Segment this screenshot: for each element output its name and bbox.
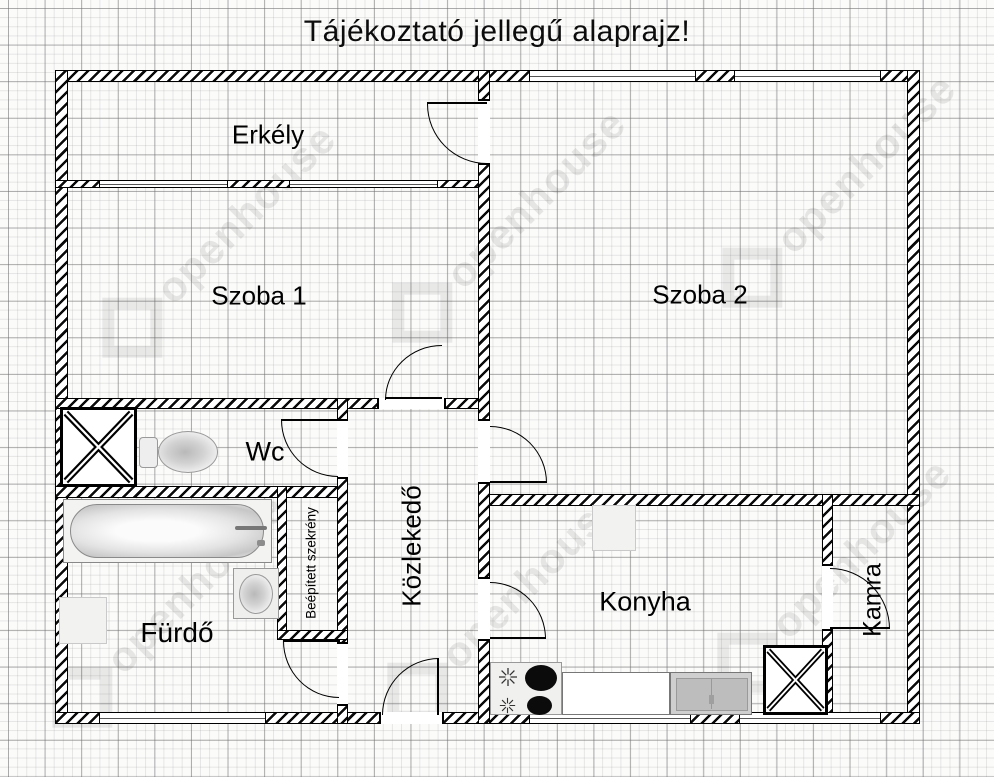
door-leaf <box>281 419 339 421</box>
door-swing-arc <box>490 582 546 639</box>
wall <box>695 70 735 82</box>
door-leaf <box>283 640 340 642</box>
stove-burner-icon <box>527 696 552 715</box>
stove-burner-star-icon <box>498 667 518 687</box>
wall <box>337 398 348 420</box>
door-swing-arc <box>382 658 439 715</box>
window <box>100 180 227 188</box>
door-swing-arc <box>281 420 338 477</box>
wall <box>337 478 348 643</box>
kitchen-sink-tap-icon <box>709 695 714 704</box>
wall <box>265 712 380 724</box>
wall <box>55 180 100 188</box>
shaft-cross-icon <box>766 648 825 712</box>
wall <box>478 164 490 420</box>
openhouse-logo-icon <box>393 282 453 342</box>
window <box>100 712 265 724</box>
room-label-szoba1: Szoba 1 <box>211 281 306 312</box>
door-leaf <box>427 102 487 104</box>
room-label-furdo: Fürdő <box>140 617 213 649</box>
fridge-icon <box>592 505 636 551</box>
washing-machine-icon <box>59 597 107 644</box>
room-label-wc: Wc <box>246 437 285 468</box>
openhouse-logo-icon <box>103 297 163 357</box>
wall <box>907 70 920 724</box>
kitchen-sink-divider-icon <box>711 678 712 709</box>
bathtub-faucet-icon <box>235 526 267 530</box>
toilet-icon <box>158 431 218 473</box>
door-swing-arc <box>283 641 339 698</box>
door-leaf <box>385 397 442 399</box>
room-label-szekreny: Beépített szekrény <box>304 507 319 619</box>
stove-burner-star-icon <box>499 697 516 714</box>
room-label-konyha: Konyha <box>599 587 691 618</box>
stove-burner-icon <box>525 665 557 691</box>
bathroom-sink-basin-icon <box>239 574 273 614</box>
wall <box>478 494 920 506</box>
wall <box>227 180 290 188</box>
shaft-icon <box>763 645 828 715</box>
wall <box>478 640 490 724</box>
door-opening <box>478 578 490 640</box>
door-opening <box>337 420 348 478</box>
watermark: openhouse <box>75 95 365 385</box>
wall <box>478 483 490 578</box>
kitchen-sink-icon <box>670 672 752 715</box>
wall <box>337 705 348 724</box>
kitchen-counter-icon <box>562 672 670 715</box>
wall <box>55 486 348 498</box>
bathtub-basin-icon <box>70 504 264 558</box>
window <box>530 70 695 82</box>
room-label-szoba2: Szoba 2 <box>652 280 747 311</box>
door-leaf <box>437 658 439 715</box>
wall <box>55 712 100 724</box>
room-label-kamra: Kamra <box>859 563 888 637</box>
wall <box>55 70 530 82</box>
floor-plan: openhouse openhouse openhouse openhouse … <box>0 0 994 777</box>
wall <box>277 630 348 640</box>
shaft-icon <box>60 407 137 487</box>
wall <box>478 70 490 100</box>
door-swing-arc <box>490 426 547 483</box>
bathtub-drain-icon <box>257 540 265 546</box>
door-leaf <box>490 481 547 483</box>
shaft-cross-icon <box>63 410 134 484</box>
room-label-kozlekedo: Közlekedő <box>397 485 428 606</box>
door-leaf <box>490 637 546 639</box>
door-swing-arc <box>427 104 487 164</box>
door-swing-arc <box>385 345 442 400</box>
window <box>290 180 437 188</box>
room-label-erkely: Erkély <box>232 120 304 151</box>
wall <box>822 494 833 565</box>
page-title: Tájékoztató jellegű alaprajz! <box>304 15 690 49</box>
door-opening <box>478 420 490 483</box>
wall <box>880 712 920 724</box>
watermark: openhouse <box>365 80 655 370</box>
toilet-tank-icon <box>139 437 158 468</box>
window <box>735 70 880 82</box>
